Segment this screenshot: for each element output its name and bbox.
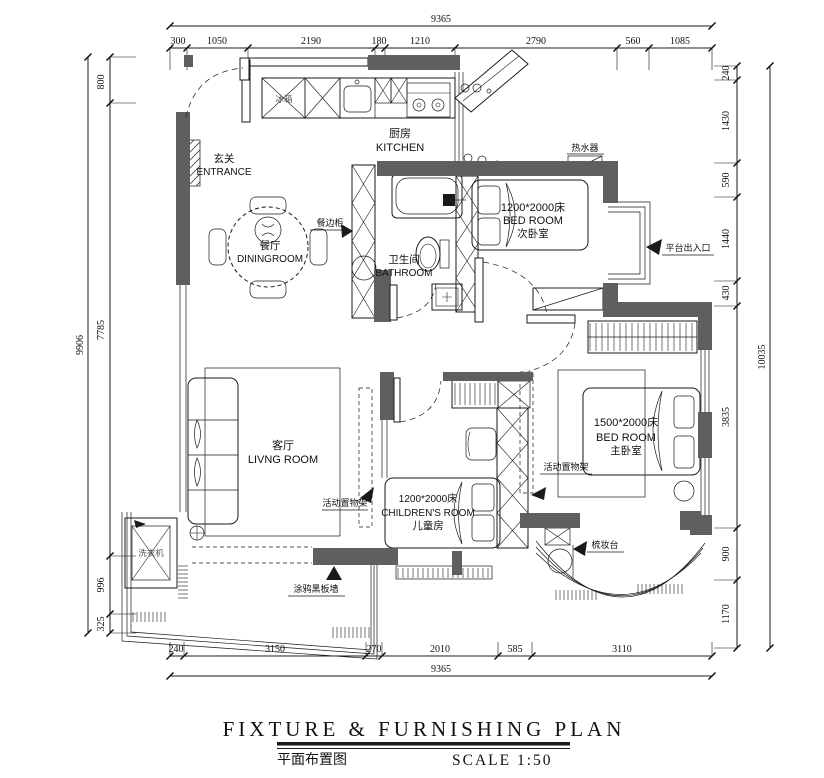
wardrobe-master <box>588 321 697 353</box>
toilet <box>416 237 449 271</box>
title-rule-thick <box>277 742 570 746</box>
label-entrance-zh: 玄关 <box>214 152 235 165</box>
label-dining-en: DININGROOM <box>237 254 303 265</box>
title-zh: 平面布置图 <box>277 752 347 768</box>
title-block: FIXTURE & FURNISHING PLAN 平面布置图 SCALE 1:… <box>223 717 626 769</box>
dim-left-seg: 7785 <box>96 320 107 340</box>
label-kitchen-zh: 厨房 <box>389 127 411 140</box>
dim-right-seg: 3835 <box>721 407 732 427</box>
label-living-zh: 客厅 <box>272 438 294 452</box>
dimension-bottom: 240 3150 270 2010 585 3110 9365 <box>167 642 716 680</box>
dim-left-seg: 996 <box>96 578 107 593</box>
desk <box>452 380 498 408</box>
label-dining-zh: 餐厅 <box>260 239 281 252</box>
bathroom-sink <box>432 284 462 310</box>
label-bathroom-en: BATHROOM <box>375 268 432 279</box>
title-en: FIXTURE & FURNISHING PLAN <box>223 717 626 741</box>
dim-top-total: 9365 <box>431 14 451 25</box>
callout-dresser: 梳妆台 <box>573 539 624 556</box>
svg-text:活动置物架: 活动置物架 <box>322 497 367 509</box>
dim-bottom-total: 9365 <box>431 664 451 675</box>
svg-text:梳妆台: 梳妆台 <box>591 539 618 551</box>
sideboard-cabinet <box>352 165 376 318</box>
dim-right-seg: 1430 <box>721 111 732 131</box>
dim-right-seg: 1440 <box>721 229 732 249</box>
dim-bottom-seg: 2010 <box>430 644 450 655</box>
window-sill-hatch <box>398 568 488 578</box>
door-entrance <box>186 58 249 117</box>
kitchen-sink <box>340 78 375 118</box>
callout-shelf-right: 活动置物架 <box>531 461 592 500</box>
dim-right-seg: 590 <box>721 173 732 188</box>
door-children <box>394 378 441 422</box>
label-bedroom2-zh: 次卧室 <box>517 227 549 240</box>
door-master <box>527 315 575 371</box>
window-sill-hatch <box>333 627 369 638</box>
label-master-en: BED ROOM <box>596 432 656 444</box>
dim-right-seg: 430 <box>721 286 732 301</box>
dim-left-total: 9906 <box>75 335 86 355</box>
dim-top-seg: 560 <box>626 36 641 47</box>
callout-shelf-left: 活动置物架 <box>322 487 374 510</box>
kitchen-counter: 冰箱 <box>262 78 455 118</box>
bay-window-master <box>536 541 705 600</box>
window-sill-hatch <box>556 590 596 600</box>
dim-top-seg: 2790 <box>526 36 546 47</box>
label-living-en: LIVNG ROOM <box>248 454 318 466</box>
shoe-cabinet-bedroom2 <box>533 288 603 310</box>
dim-bottom-seg: 240 <box>169 644 184 655</box>
svg-text:热水器: 热水器 <box>571 142 598 154</box>
label-children-zh: 儿童房 <box>412 519 444 532</box>
floor-drain-symbol <box>190 526 204 540</box>
label-entrance-en: ENTRANCE <box>196 167 251 178</box>
bathroom-fixtures <box>392 174 466 310</box>
movable-shelf-master <box>520 372 533 493</box>
window-sill-hatch <box>178 566 188 598</box>
svg-text:活动置物架: 活动置物架 <box>543 461 588 473</box>
washing-machine: 洗衣机 <box>125 518 177 588</box>
callout-blackboard: 涂鸦黑板墙 <box>288 566 345 596</box>
dim-top-seg: 180 <box>372 36 387 47</box>
callout-platform-entry: 平台出入口 <box>646 239 714 255</box>
window-sill-hatch <box>133 612 165 622</box>
label-children-en: CHILDREN'S ROOM <box>381 508 475 519</box>
label-bedroom2-bed: 1200*2000床 <box>501 200 565 214</box>
svg-text:平台出入口: 平台出入口 <box>665 242 710 254</box>
dim-right-seg: 900 <box>721 547 732 562</box>
dim-top-seg: 1085 <box>670 36 690 47</box>
label-master-zh: 主卧室 <box>610 444 642 457</box>
dim-bottom-seg: 585 <box>508 644 523 655</box>
window-bay-bedroom2 <box>608 202 650 284</box>
dimension-right: 240 1430 590 1440 430 3835 900 1170 1003… <box>714 63 774 652</box>
room-labels: 玄关 ENTRANCE 厨房 KITCHEN 餐厅 DININGROOM 卫生间… <box>196 127 658 532</box>
label-children-bed: 1200*2000床 <box>399 492 457 505</box>
kitchen-stove <box>407 83 450 117</box>
dim-right-seg: 240 <box>721 66 732 81</box>
floor-plan-page: 9365 300 1050 2190 180 1210 2790 560 108… <box>0 0 824 778</box>
label-bedroom2-en: BED ROOM <box>503 215 563 227</box>
dim-left-seg: 325 <box>96 617 107 632</box>
chair <box>466 428 496 460</box>
dim-top-seg: 300 <box>171 36 186 47</box>
dim-bottom-seg: 3150 <box>265 644 285 655</box>
dresser <box>545 528 573 578</box>
vent-duct <box>455 50 528 112</box>
title-scale: SCALE 1:50 <box>452 752 553 769</box>
living-rug <box>205 368 340 536</box>
door-bedroom2 <box>475 258 548 322</box>
door-bathroom <box>390 284 436 320</box>
children-furniture <box>385 380 530 548</box>
label-master-bed: 1500*2000床 <box>594 415 658 429</box>
bathtub <box>392 174 466 218</box>
callout-sideboard: 餐边柜 <box>310 217 353 238</box>
balcony-bottom-left <box>122 512 377 659</box>
svg-text:涂鸦黑板墙: 涂鸦黑板墙 <box>293 583 338 595</box>
label-bathroom-zh: 卫生间 <box>388 253 420 266</box>
washing-machine-label: 洗衣机 <box>138 548 164 559</box>
svg-text:餐边柜: 餐边柜 <box>316 217 343 229</box>
dim-right-total: 10035 <box>757 345 768 370</box>
label-kitchen-en: KITCHEN <box>376 142 424 154</box>
dim-right-seg: 1170 <box>721 604 732 624</box>
stool-master <box>674 481 694 501</box>
window-children-bottom <box>396 566 492 579</box>
callout-water-heater: 热水器 <box>567 142 604 154</box>
fridge-label: 冰箱 <box>275 94 293 105</box>
dim-left-seg: 800 <box>96 75 107 90</box>
dim-top-seg: 1050 <box>207 36 227 47</box>
dim-bottom-seg: 3110 <box>612 644 632 655</box>
sofa <box>188 378 238 524</box>
dim-top-seg: 1210 <box>410 36 430 47</box>
dim-top-seg: 2190 <box>301 36 321 47</box>
